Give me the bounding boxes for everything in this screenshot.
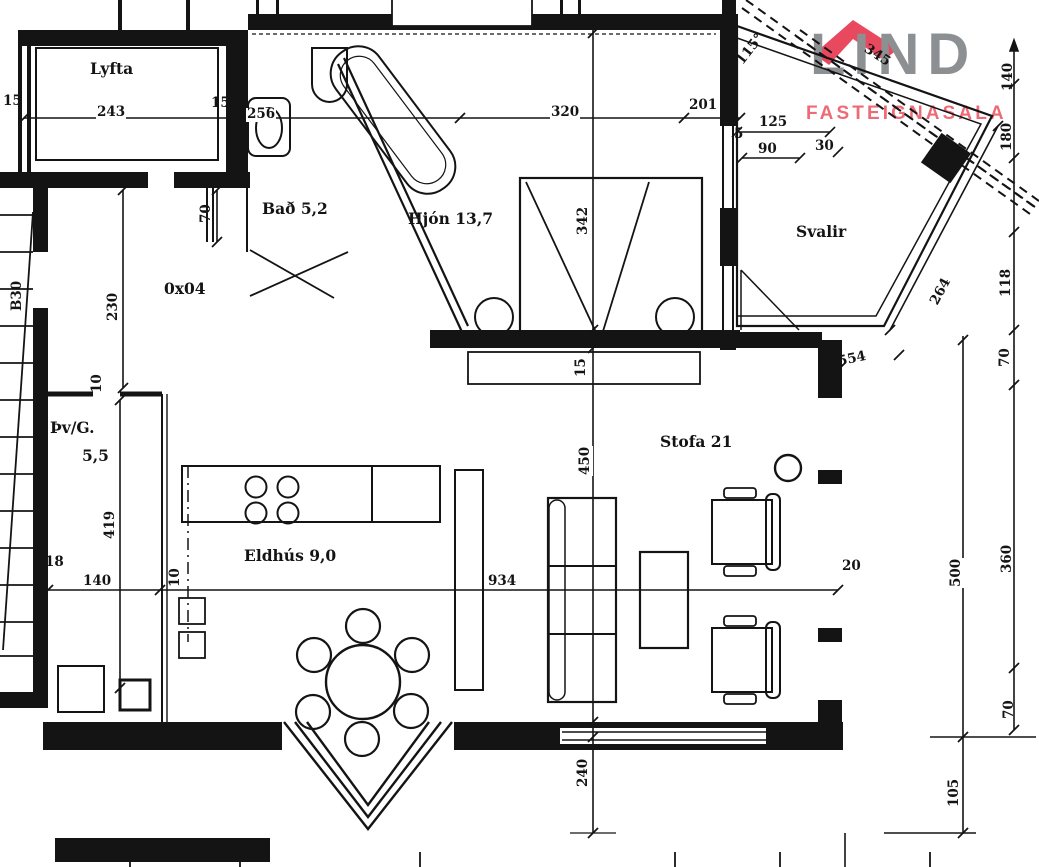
dimension-label: 20	[841, 560, 862, 574]
wall-openings	[148, 172, 766, 750]
room-label-laundry: Þv/G.	[50, 420, 94, 436]
room-label-kitchen: Eldhús 9,0	[244, 548, 336, 564]
room-label-living: Stofa 21	[660, 434, 732, 450]
dimension-label: 320	[550, 106, 580, 120]
stove-burners	[246, 477, 299, 524]
armchair-icon	[712, 488, 780, 576]
bed-icon	[520, 178, 702, 344]
dimension-label: 18	[44, 556, 65, 570]
armchair-icon	[712, 616, 780, 704]
dimension-label: 125	[758, 116, 788, 130]
floorplan-drawing	[0, 0, 1039, 867]
dimension-label: 5	[733, 128, 744, 142]
shelf-icon	[455, 470, 483, 690]
dimension-label: 15	[2, 95, 23, 109]
dimension-label: 180	[1001, 122, 1015, 152]
dimension-label: 70	[999, 347, 1013, 368]
staircase	[0, 212, 33, 656]
dimension-label: 450	[579, 446, 593, 476]
room-label-balcony: Svalir	[796, 224, 846, 240]
dimension-label: 90	[757, 143, 778, 157]
dimension-label: 10	[91, 373, 105, 394]
dimension-label: 140	[1002, 62, 1016, 92]
room-label-bathroom: Bað 5,2	[262, 201, 328, 217]
dining-table-icon	[326, 645, 400, 719]
dimension-label: 15	[210, 97, 231, 111]
dimension-label: 10	[169, 567, 183, 588]
upper-floor-cut	[392, 0, 532, 26]
dimension-label: 500	[950, 558, 964, 588]
coffee-table-icon	[640, 552, 688, 648]
dimension-label: 15	[575, 357, 589, 378]
dimension-label: 243	[96, 106, 126, 120]
bathroom-fixtures	[248, 36, 466, 204]
room-label-hall: 0x04	[164, 281, 206, 297]
dimension-label: 240	[577, 758, 591, 788]
dimension-label: 105	[948, 778, 962, 808]
dimension-label: 140	[82, 575, 112, 589]
dimension-label: 256	[246, 108, 276, 122]
bath-diagonal-wall	[344, 58, 468, 326]
washer-icon	[58, 666, 104, 712]
kitchen-counter	[182, 466, 440, 522]
dimension-label: 230	[107, 292, 121, 322]
dimension-label: 419	[104, 510, 118, 540]
roof-dash-lines	[742, 0, 1039, 214]
room-label-laundry-area: 5,5	[82, 448, 109, 464]
sink-icon	[312, 48, 347, 102]
dimension-label: 201	[688, 99, 718, 113]
dimension-label: 70	[1003, 699, 1017, 720]
dimension-label: 934	[487, 575, 517, 589]
room-label-elevator: Lyfta	[90, 61, 133, 77]
sofa-icon	[548, 498, 616, 702]
laundry-fixtures	[58, 666, 150, 712]
dimension-label: 118	[1000, 268, 1014, 298]
dimension-label: 360	[1001, 544, 1015, 574]
dimension-label: 70	[200, 203, 214, 224]
dimension-label: 342	[577, 206, 591, 236]
room-label-bedroom: Hjón 13,7	[408, 211, 493, 227]
plant-icon	[775, 455, 801, 481]
bathtub-icon	[320, 36, 465, 204]
dimension-label: 30	[814, 140, 835, 154]
floorplan-page: LIND FASTEIGNASALA	[0, 0, 1039, 867]
dimension-label-door: B30	[11, 280, 25, 312]
